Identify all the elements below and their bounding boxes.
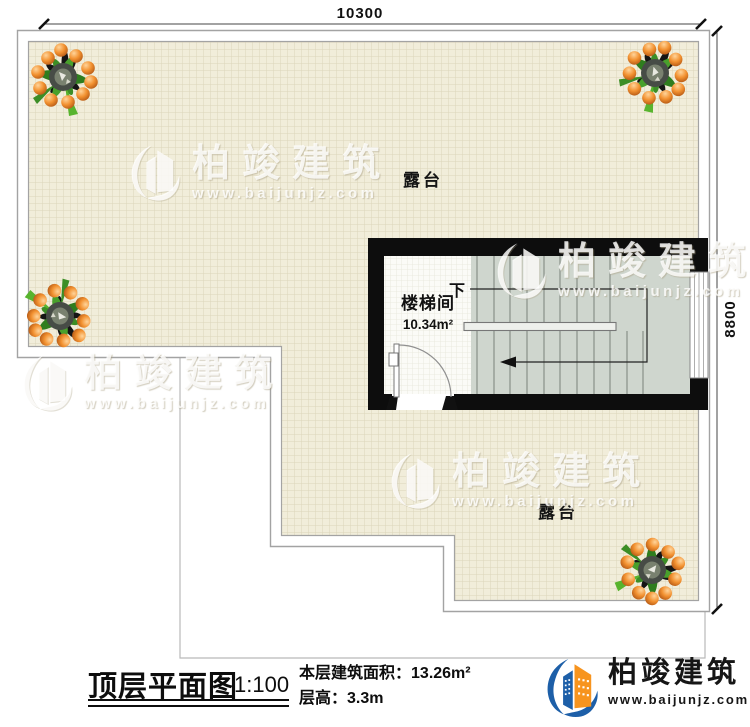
floor-area-value: 13.26m²: [411, 665, 471, 682]
terrace-label-bottom: 露台: [538, 498, 578, 523]
company-logo-icon: [542, 655, 600, 721]
floor-area-row: 本层建筑面积：13.26m²: [299, 661, 471, 686]
floor-info-block: 本层建筑面积：13.26m² 层高：3.3m: [299, 661, 471, 711]
title-underline: [88, 705, 289, 707]
plan-drawing: [0, 0, 750, 727]
terrace-label-top: 露台: [403, 166, 443, 191]
dimension-height-value: 8800: [722, 289, 738, 349]
floor-height-row: 层高：3.3m: [299, 686, 471, 711]
drawing-scale: 1:100: [234, 672, 289, 698]
stairwell-window: [690, 272, 708, 378]
title-underline: [88, 699, 289, 701]
company-logo: 柏竣建筑 www.baijunjz.com: [542, 655, 749, 721]
stairs-down-label: 下: [449, 277, 465, 301]
dimension-width-value: 10300: [310, 5, 410, 22]
company-name: 柏竣建筑: [608, 655, 749, 691]
floor-height-label: 层高：: [299, 690, 347, 707]
floorplan-canvas: 10300 8800 露台 露台 楼梯间 10.34m² 下 柏竣建筑 www.…: [0, 0, 750, 727]
floor-height-value: 3.3m: [347, 690, 383, 707]
stairwell-area: 10.34m²: [384, 317, 472, 332]
stair-handrail: [464, 323, 616, 331]
company-website: www.baijunjz.com: [608, 692, 749, 707]
floor-area-label: 本层建筑面积：: [299, 665, 411, 682]
